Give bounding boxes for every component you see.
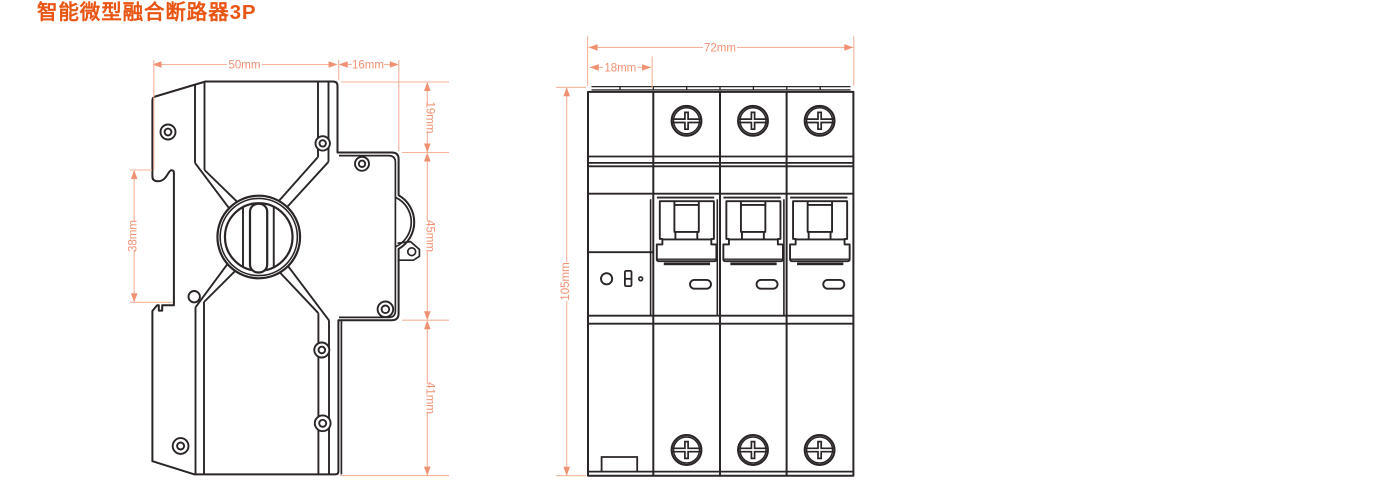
svg-text:45mm: 45mm [423,220,435,252]
svg-text:50mm: 50mm [229,60,261,72]
svg-text:18mm: 18mm [604,63,636,75]
svg-text:16mm: 16mm [352,60,384,72]
svg-text:105mm: 105mm [560,262,572,300]
svg-text:41mm: 41mm [423,382,435,414]
svg-text:72mm: 72mm [704,43,736,55]
svg-text:38mm: 38mm [128,220,140,252]
svg-text:19mm: 19mm [423,102,435,134]
svg-text:智能微型融合断路器3P: 智能微型融合断路器3P [37,0,256,24]
